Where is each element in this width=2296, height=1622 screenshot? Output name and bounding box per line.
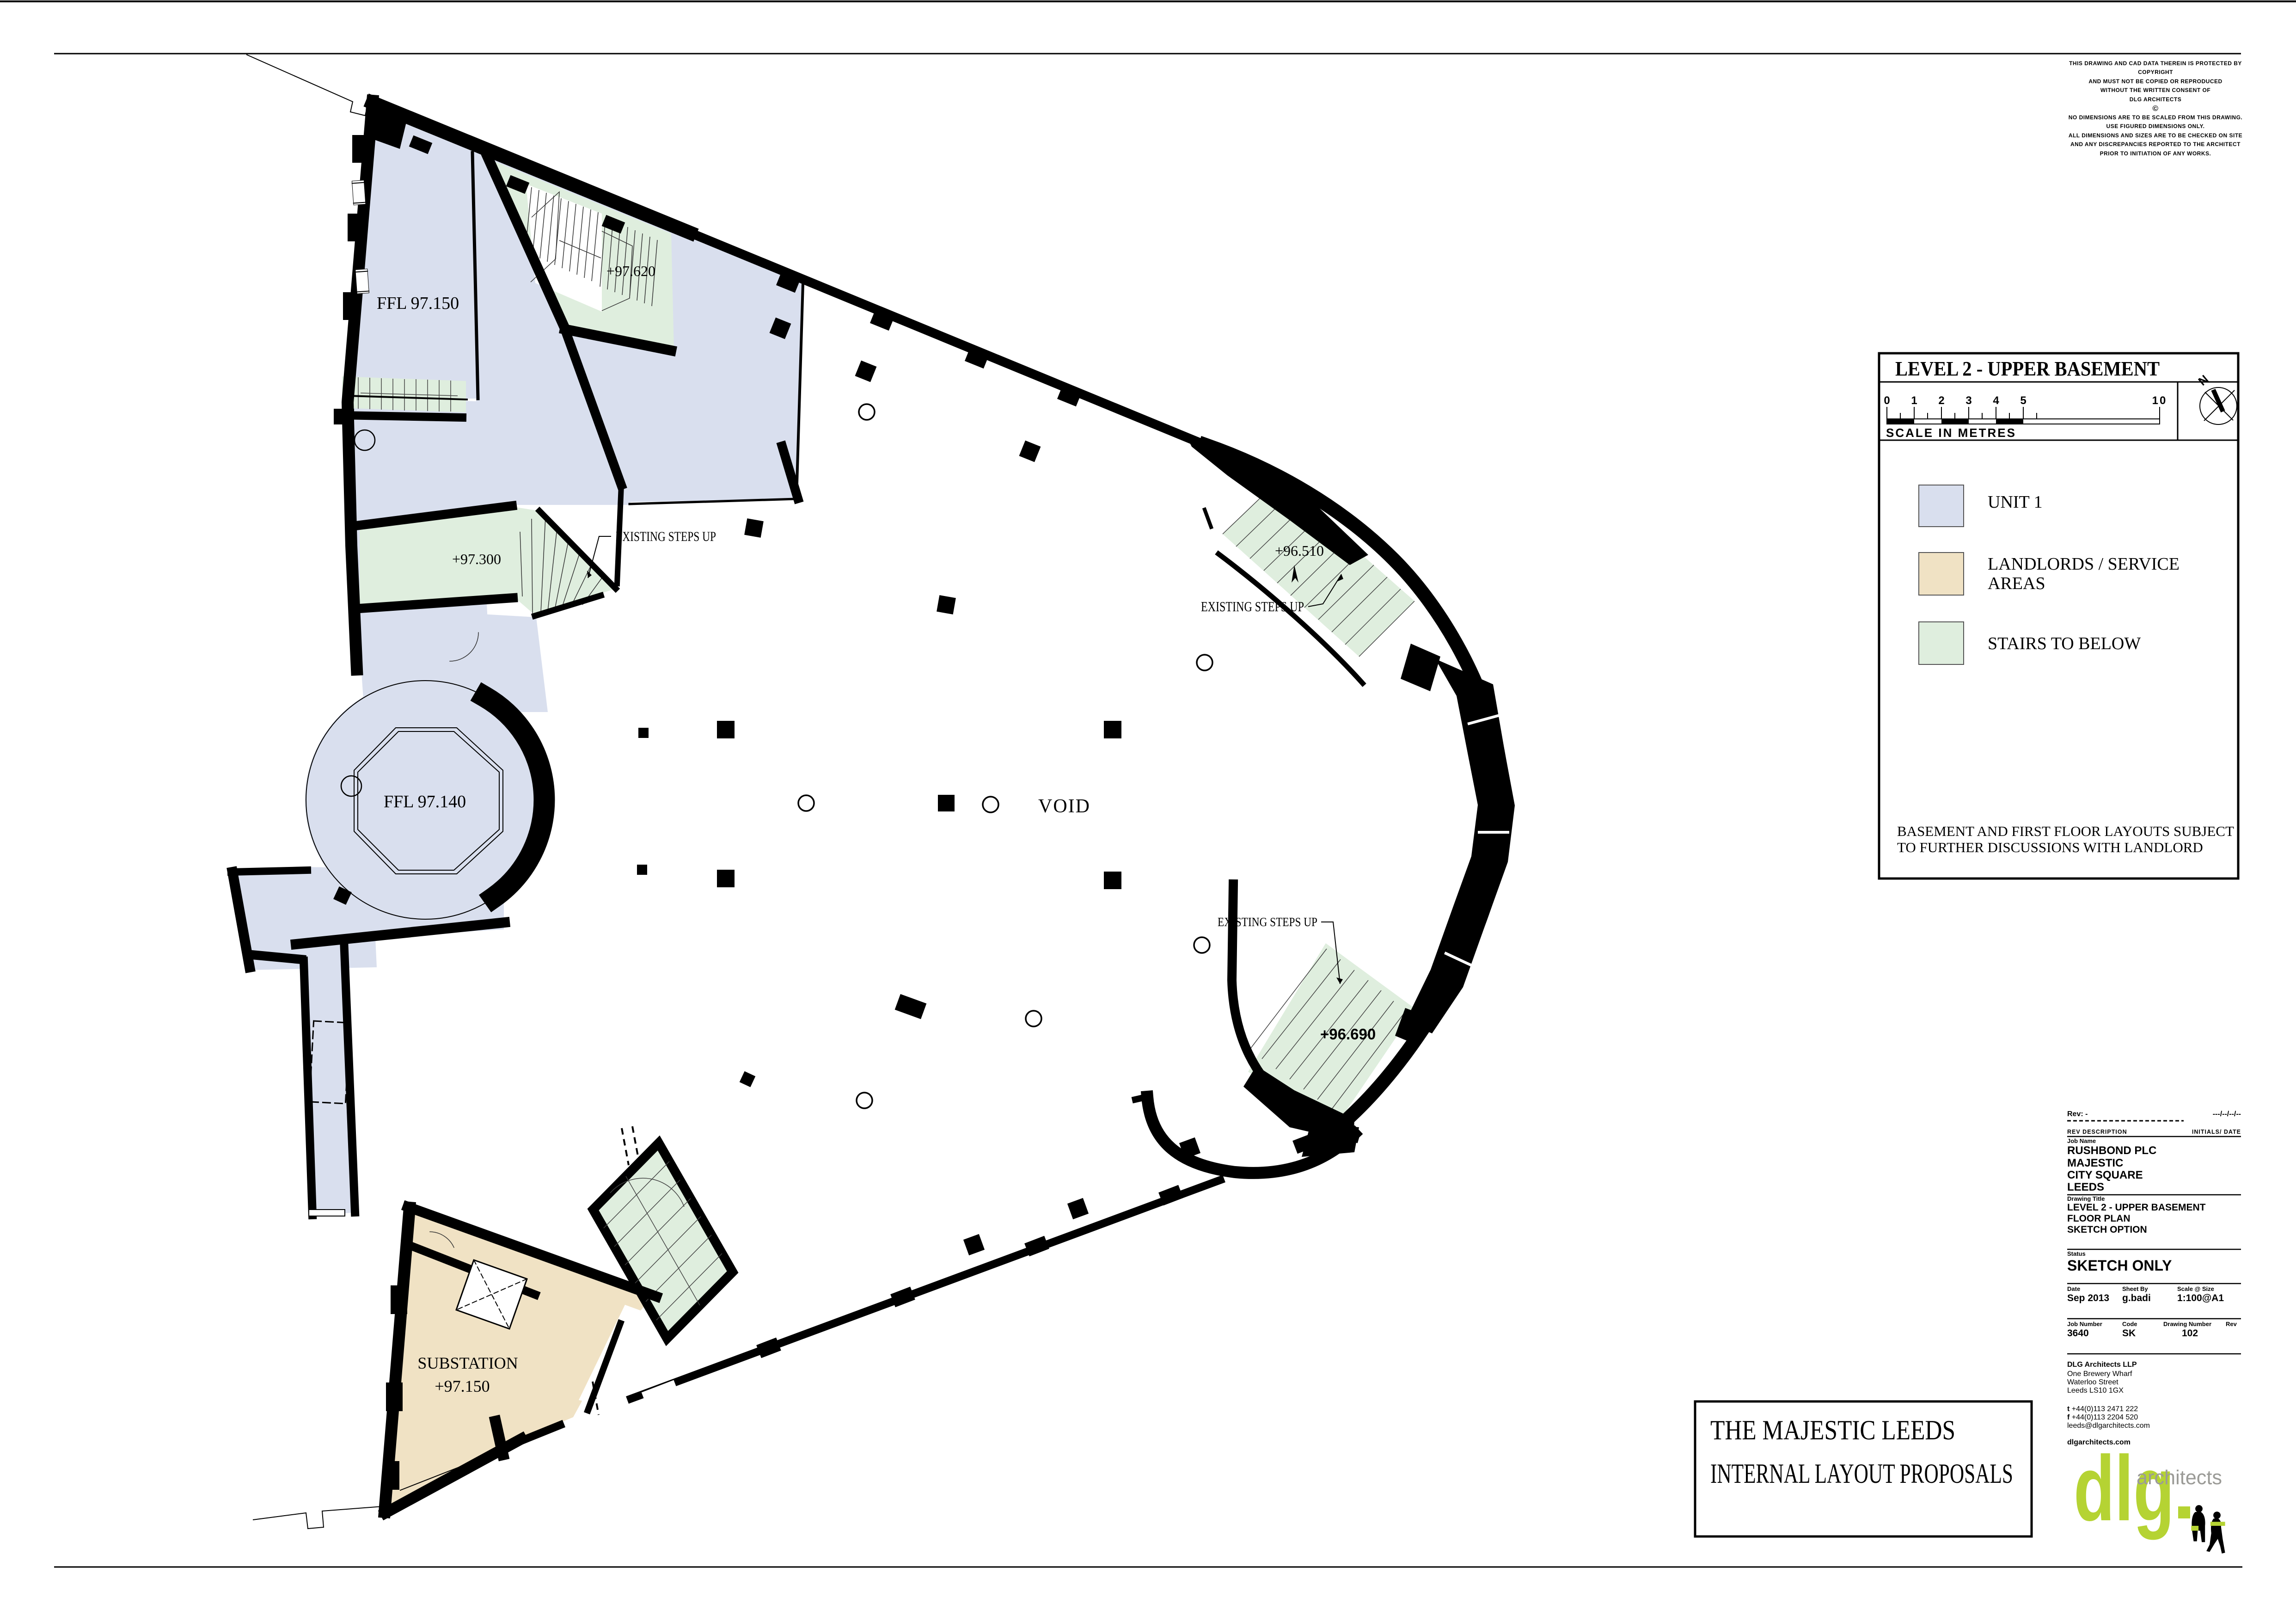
svg-text:WITHOUT THE WRITTEN CONSENT OF: WITHOUT THE WRITTEN CONSENT OF (2100, 87, 2210, 93)
svg-text:DLG ARCHITECTS: DLG ARCHITECTS (2130, 96, 2182, 103)
svg-text:SUBSTATION: SUBSTATION (417, 1354, 518, 1372)
svg-text:RUSHBOND PLC: RUSHBOND PLC (2067, 1144, 2156, 1157)
svg-text:LANDLORDS / SERVICE: LANDLORDS / SERVICE (1988, 554, 2180, 574)
svg-text:+97.300: +97.300 (452, 551, 501, 567)
svg-text:EXISTING STEPS UP: EXISTING STEPS UP (616, 529, 716, 544)
svg-text:NO DIMENSIONS ARE TO BE SCALED: NO DIMENSIONS ARE TO BE SCALED FROM THIS… (2069, 114, 2243, 121)
svg-text:EXISTING STEPS UP: EXISTING STEPS UP (1201, 598, 1304, 614)
svg-text:UNIT 1: UNIT 1 (1988, 492, 2043, 512)
svg-text:THIS DRAWING AND CAD DATA THER: THIS DRAWING AND CAD DATA THEREIN IS PRO… (2069, 60, 2242, 67)
svg-text:SCALE IN METRES: SCALE IN METRES (1886, 426, 2016, 440)
svg-text:STAIRS TO BELOW: STAIRS TO BELOW (1988, 634, 2141, 653)
svg-text:1:100@A1: 1:100@A1 (2177, 1293, 2224, 1303)
svg-text:+97.620: +97.620 (606, 263, 655, 279)
svg-text:leeds@dlgarchitects.com: leeds@dlgarchitects.com (2067, 1422, 2150, 1430)
svg-text:PRIOR TO INITIATION OF ANY WOR: PRIOR TO INITIATION OF ANY WORKS. (2100, 150, 2211, 157)
svg-text:LEEDS: LEEDS (2067, 1181, 2104, 1193)
svg-text:USE FIGURED DIMENSIONS ONLY.: USE FIGURED DIMENSIONS ONLY. (2106, 123, 2205, 129)
svg-text:LEVEL 2 - UPPER BASEMENT: LEVEL 2 - UPPER BASEMENT (1895, 357, 2160, 380)
svg-text:5: 5 (2020, 394, 2026, 407)
svg-text:+96.510: +96.510 (1275, 542, 1324, 559)
svg-text:Drawing Number: Drawing Number (2163, 1321, 2211, 1327)
svg-text:Leeds LS10 1GX: Leeds LS10 1GX (2067, 1387, 2124, 1395)
svg-text:LEVEL 2 - UPPER BASEMENT: LEVEL 2 - UPPER BASEMENT (2067, 1202, 2206, 1213)
svg-text:©: © (2152, 104, 2158, 113)
svg-text:2: 2 (1938, 394, 1944, 407)
svg-text:INTERNAL LAYOUT PROPOSALS: INTERNAL LAYOUT PROPOSALS (1710, 1458, 2013, 1489)
svg-text:ALL DIMENSIONS AND SIZES ARE T: ALL DIMENSIONS AND SIZES ARE TO BE CHECK… (2069, 132, 2242, 139)
svg-text:EXISTING STEPS UP: EXISTING STEPS UP (1218, 915, 1317, 929)
svg-text:Sep 2013: Sep 2013 (2067, 1293, 2109, 1303)
svg-text:102: 102 (2182, 1328, 2198, 1339)
svg-text:10: 10 (2152, 394, 2167, 407)
svg-text:3: 3 (1965, 394, 1971, 407)
svg-text:Sheet By: Sheet By (2122, 1285, 2148, 1292)
svg-text:SK: SK (2122, 1328, 2136, 1339)
svg-text:AND ANY DISCREPANCIES REPORTED: AND ANY DISCREPANCIES REPORTED TO THE AR… (2070, 141, 2241, 147)
svg-text:Scale @ Size: Scale @ Size (2177, 1285, 2214, 1292)
svg-text:MAJESTIC: MAJESTIC (2067, 1157, 2123, 1169)
svg-text:Rev: -: Rev: - (2067, 1110, 2088, 1118)
svg-text:Code: Code (2122, 1321, 2137, 1327)
svg-text:COPYRIGHT: COPYRIGHT (2138, 69, 2173, 75)
svg-text:g.badi: g.badi (2122, 1293, 2151, 1303)
svg-text:BASEMENT AND FIRST FLOOR LAYOU: BASEMENT AND FIRST FLOOR LAYOUTS SUBJECT (1897, 823, 2234, 839)
svg-text:INITIALS/ DATE: INITIALS/ DATE (2192, 1129, 2241, 1135)
svg-text:CITY SQUARE: CITY SQUARE (2067, 1169, 2143, 1181)
svg-text:FFL 97.150: FFL 97.150 (377, 294, 459, 313)
svg-text:f +44(0)113 2204 520: f +44(0)113 2204 520 (2067, 1413, 2138, 1421)
svg-text:One Brewery Wharf: One Brewery Wharf (2067, 1370, 2132, 1378)
svg-text:SKETCH ONLY: SKETCH ONLY (2067, 1257, 2172, 1274)
svg-text:REV DESCRIPTION: REV DESCRIPTION (2067, 1129, 2127, 1135)
svg-text:Waterloo Street: Waterloo Street (2067, 1378, 2118, 1386)
svg-text:Status: Status (2067, 1250, 2086, 1257)
svg-text:Job Name: Job Name (2067, 1137, 2096, 1144)
svg-text:+96.690: +96.690 (1320, 1026, 1376, 1043)
svg-text:VOID: VOID (1038, 796, 1090, 817)
svg-text:Date: Date (2067, 1285, 2080, 1292)
svg-text:AND MUST NOT BE COPIED OR REPR: AND MUST NOT BE COPIED OR REPRODUCED (2088, 78, 2222, 85)
svg-text:Rev: Rev (2226, 1321, 2237, 1327)
svg-text:DLG Architects LLP: DLG Architects LLP (2067, 1361, 2137, 1369)
svg-text:1: 1 (1911, 394, 1917, 407)
svg-text:FFL 97.140: FFL 97.140 (384, 792, 466, 811)
svg-text:Drawing Title: Drawing Title (2067, 1195, 2105, 1202)
svg-text:Job Number: Job Number (2067, 1321, 2102, 1327)
svg-text:---/--/--/--: ---/--/--/-- (2213, 1110, 2241, 1118)
svg-text:0: 0 (1884, 394, 1890, 407)
svg-text:THE MAJESTIC LEEDS: THE MAJESTIC LEEDS (1710, 1415, 1955, 1445)
svg-text:t +44(0)113 2471 222: t +44(0)113 2471 222 (2067, 1405, 2138, 1413)
svg-text:SKETCH OPTION: SKETCH OPTION (2067, 1224, 2147, 1235)
svg-text:4: 4 (1993, 394, 1999, 407)
svg-text:architects: architects (2137, 1466, 2222, 1489)
svg-text:FLOOR PLAN: FLOOR PLAN (2067, 1213, 2131, 1224)
svg-text:+97.150: +97.150 (435, 1377, 490, 1395)
svg-text:AREAS: AREAS (1988, 574, 2045, 593)
svg-text:3640: 3640 (2067, 1328, 2089, 1339)
svg-text:TO FURTHER DISCUSSIONS WITH LA: TO FURTHER DISCUSSIONS WITH LANDLORD (1897, 839, 2203, 855)
